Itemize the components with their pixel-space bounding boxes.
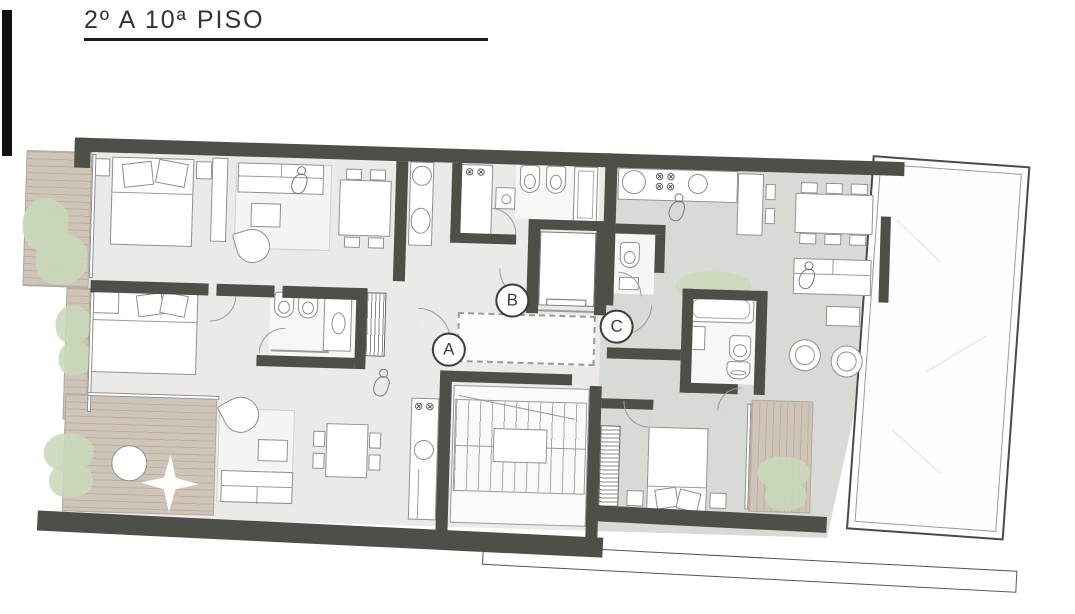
shaft-hatched [365, 292, 387, 357]
burner-row: ⊗⊗ [465, 167, 488, 178]
toilet [619, 242, 640, 269]
double-bed [110, 157, 195, 247]
double-bed [88, 288, 198, 375]
plant [764, 480, 807, 511]
nightstand [196, 161, 213, 179]
dining-chair [849, 235, 866, 246]
wall-toilet-c-top [615, 224, 665, 235]
dining-chair [826, 183, 843, 194]
bed-fold-line [112, 192, 192, 195]
coffee-table [826, 306, 861, 327]
sofa-cushion-line [832, 260, 833, 274]
nightstand [709, 492, 726, 508]
toilet-seat [623, 251, 635, 264]
nightstand [94, 158, 111, 176]
wall-top-left-stub [74, 137, 91, 167]
bar-stool [765, 184, 775, 200]
page-title: 2º A 10ª PISO [84, 6, 265, 35]
unit-b-label-text: B [506, 290, 518, 310]
sofa [220, 470, 293, 504]
bidet [546, 165, 567, 194]
left-accent-bar [2, 10, 12, 156]
wardrobe [210, 158, 228, 242]
terrace-inner-line [855, 164, 1022, 532]
washing-machine [495, 187, 516, 210]
person-figure [373, 368, 390, 398]
dining-chair [312, 453, 324, 469]
common-hall-dashed-outline [456, 312, 595, 366]
shower [573, 166, 599, 223]
washer-door [501, 194, 511, 204]
toilet [520, 165, 541, 194]
dining-chair [346, 169, 362, 180]
coffee-table [250, 203, 281, 228]
stair-landing [493, 428, 548, 464]
wall-toilet-c-right [654, 235, 665, 273]
vanity [323, 295, 353, 352]
bar-stool [765, 208, 775, 224]
dining-chair [824, 234, 841, 245]
dining-chair [801, 182, 818, 193]
nightstand [626, 490, 643, 506]
toilet-seat [733, 344, 747, 357]
elevator-counterweight [546, 299, 586, 307]
unit-c-label-text: C [610, 316, 623, 336]
sofa-cushion-line [281, 165, 282, 177]
dining-chair [368, 237, 384, 248]
bed-fold-line [648, 486, 706, 489]
dining-chair [368, 454, 380, 470]
dining-chair [799, 233, 816, 244]
dining-chair [370, 169, 386, 180]
bidet-basin [550, 175, 562, 190]
bidet-basin [302, 301, 314, 314]
bidet-basin [730, 370, 746, 375]
wall-corridor-c [607, 347, 681, 360]
terrace-right-outline [846, 155, 1030, 540]
toilet-seat [524, 174, 536, 189]
page: { "header": { "title": "2º A 10ª PISO" }… [0, 0, 1075, 577]
dining-chair [851, 184, 868, 195]
dining-chair [369, 432, 381, 448]
wall-interior [282, 286, 366, 300]
bathtub-inner-line [692, 298, 751, 320]
vanity [691, 326, 706, 350]
tub-chair-cushion [795, 345, 816, 366]
wardrobe-hatched [598, 425, 620, 508]
shower-tray-line [577, 170, 594, 218]
toilet-seat [278, 301, 290, 314]
bidet [726, 361, 751, 380]
coffee-table [257, 439, 288, 462]
counter-line [417, 469, 419, 519]
stove-burner-icon: ⊗⊗ [414, 402, 437, 413]
person-figure [799, 261, 816, 291]
dining-table [325, 423, 369, 478]
elevator-car [538, 231, 596, 307]
wall-interior [450, 233, 516, 245]
tub-chair-cushion [836, 351, 857, 372]
nightstand [93, 291, 120, 314]
person-figure [291, 166, 308, 196]
vanity-basin [331, 312, 346, 334]
bed-fold-line [91, 319, 197, 323]
burner-row: ⊗⊗ [655, 182, 678, 193]
dining-table [338, 179, 392, 237]
toilet [729, 335, 752, 362]
stove-burner-icon: ⊗⊗ [465, 167, 488, 178]
burner-row: ⊗⊗ [414, 402, 437, 413]
title-underline [84, 38, 488, 41]
dining-chair [313, 431, 325, 447]
person-figure [669, 193, 686, 223]
stove-burner-icon: ⊗⊗ ⊗⊗ [655, 172, 678, 193]
double-bed [646, 427, 708, 513]
dining-table [794, 193, 873, 235]
floor-plan: ⊗⊗ ⊗⊗ ⊗⊗ [12, 136, 1037, 614]
sofa [237, 162, 324, 195]
pillow [122, 161, 154, 188]
pillow [155, 159, 189, 188]
kitchen-island [736, 173, 764, 236]
unit-a-label-text: A [443, 340, 455, 360]
sofa-cushion-line [256, 486, 258, 504]
dining-chair [344, 237, 360, 248]
